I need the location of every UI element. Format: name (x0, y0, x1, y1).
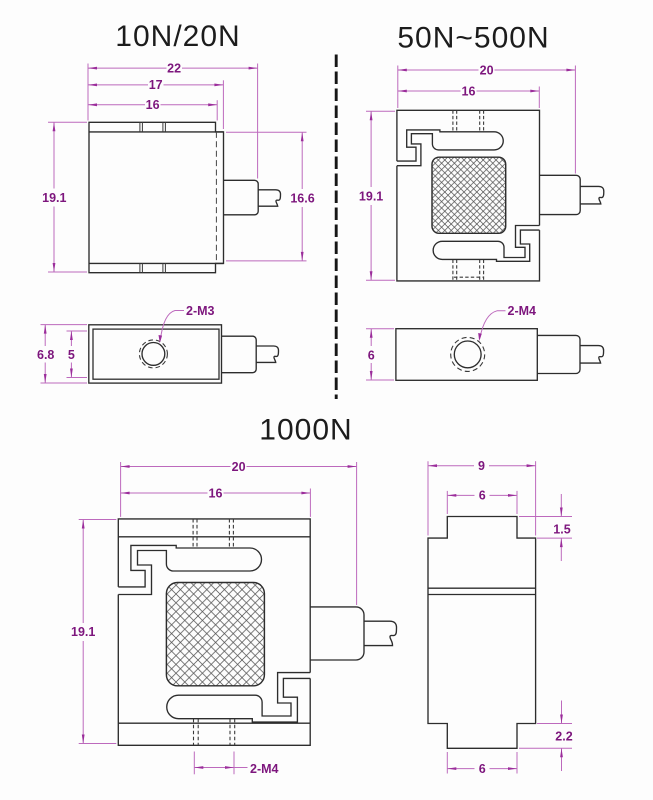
svg-text:19.1: 19.1 (42, 191, 66, 205)
svg-text:19.1: 19.1 (359, 190, 383, 204)
svg-text:9: 9 (478, 459, 485, 473)
svg-text:6.8: 6.8 (37, 348, 54, 362)
svg-text:17: 17 (149, 78, 163, 92)
svg-text:16: 16 (462, 84, 476, 98)
svg-text:16: 16 (209, 486, 223, 500)
svg-text:6: 6 (479, 489, 486, 503)
svg-text:6: 6 (368, 349, 375, 363)
svg-text:22: 22 (167, 61, 181, 75)
svg-text:50N~500N: 50N~500N (397, 22, 549, 55)
svg-text:1.5: 1.5 (553, 523, 570, 537)
svg-text:16.6: 16.6 (290, 192, 314, 206)
svg-text:1000N: 1000N (259, 413, 352, 446)
svg-text:16: 16 (146, 98, 160, 112)
svg-text:2-M4: 2-M4 (508, 304, 537, 318)
svg-text:20: 20 (232, 460, 246, 474)
svg-text:10N/20N: 10N/20N (115, 20, 240, 53)
svg-text:2.2: 2.2 (555, 729, 572, 743)
svg-text:2-M4: 2-M4 (250, 762, 279, 776)
svg-text:20: 20 (480, 63, 494, 77)
svg-text:6: 6 (479, 762, 486, 776)
svg-text:5: 5 (68, 348, 75, 362)
svg-text:2-M3: 2-M3 (186, 304, 215, 318)
svg-text:19.1: 19.1 (71, 625, 95, 639)
